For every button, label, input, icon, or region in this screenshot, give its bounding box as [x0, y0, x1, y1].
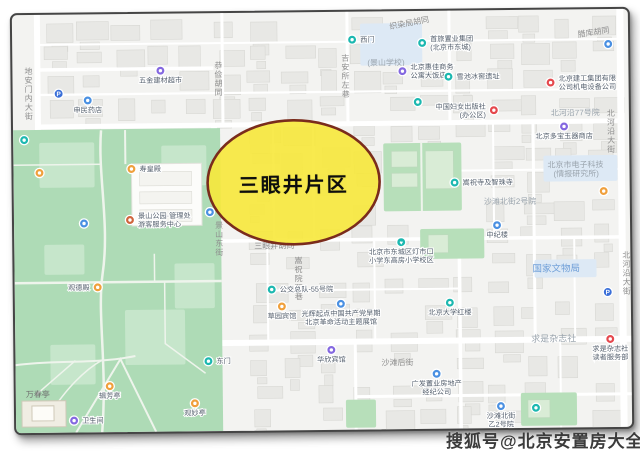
building — [604, 244, 613, 252]
poi-label: 观妙亭 — [184, 408, 206, 417]
region-label: 三眼井片区 — [238, 168, 348, 198]
poi-marker[interactable] — [398, 67, 407, 76]
road-label: 万春亭 — [26, 389, 50, 399]
building — [118, 99, 135, 121]
building — [595, 224, 609, 242]
building — [319, 385, 333, 403]
building — [594, 253, 609, 268]
building — [83, 76, 99, 87]
building — [253, 305, 267, 323]
pavilion — [32, 406, 54, 421]
building — [385, 86, 397, 94]
building — [324, 408, 343, 420]
poi-marker[interactable] — [606, 334, 615, 343]
poi-marker[interactable] — [546, 78, 555, 87]
building — [321, 108, 335, 115]
poi-marker[interactable] — [496, 401, 505, 410]
road — [37, 15, 38, 130]
building — [529, 356, 547, 376]
poi-marker[interactable] — [450, 178, 459, 187]
building — [353, 283, 370, 302]
road-label: (情报研究所) — [553, 168, 599, 178]
building — [77, 52, 101, 63]
heart-icon: ♥ — [399, 241, 403, 247]
building — [493, 146, 524, 160]
building — [257, 429, 267, 433]
building — [394, 399, 412, 407]
road — [459, 239, 461, 429]
temple-building — [392, 173, 418, 187]
poi-marker[interactable] — [432, 369, 441, 378]
building — [111, 25, 140, 40]
building — [521, 308, 535, 319]
poi-label: 草园宾馆 — [268, 311, 297, 320]
poi-marker[interactable] — [559, 122, 568, 131]
poi-label: 公寓大饭店 — [410, 71, 446, 80]
building — [527, 216, 546, 225]
poi-marker[interactable] — [277, 302, 286, 311]
poi-marker[interactable] — [604, 39, 613, 48]
building — [486, 16, 518, 28]
poi-label: 北京多宝玉器商店 — [535, 131, 593, 141]
poi-marker[interactable] — [531, 403, 540, 412]
road-label: 国家文物局 — [532, 262, 580, 274]
building — [255, 410, 271, 427]
road-label: 沙滩后街 — [381, 357, 413, 367]
building — [518, 16, 538, 32]
building — [354, 71, 381, 93]
building — [492, 253, 514, 263]
building — [504, 355, 521, 363]
building — [251, 22, 278, 42]
palace-building — [139, 171, 191, 186]
building — [148, 46, 168, 64]
building — [250, 46, 265, 59]
poi-label: 雪池冰窖遗址 — [456, 72, 499, 81]
poi-marker[interactable] — [413, 97, 422, 106]
building — [249, 98, 266, 110]
poi-marker[interactable] — [156, 66, 165, 75]
road — [620, 9, 624, 427]
building — [152, 100, 166, 113]
poi-label: 东门 — [216, 356, 230, 365]
poi-label: 中纪楼 — [486, 230, 508, 239]
poi-marker[interactable] — [492, 221, 501, 230]
road-label: 恭俭胡同 — [214, 61, 223, 97]
poi-marker[interactable] — [19, 135, 28, 144]
building — [76, 22, 108, 41]
temple-building — [391, 151, 417, 167]
park-path — [13, 164, 101, 165]
road — [37, 68, 213, 70]
poi-marker[interactable] — [204, 357, 213, 366]
building — [257, 61, 266, 68]
building — [50, 100, 73, 118]
poi-marker[interactable] — [417, 38, 426, 47]
building — [489, 282, 509, 293]
road-label: 求是杂志社 — [531, 332, 576, 343]
building — [286, 46, 316, 59]
map-canvas[interactable]: 地安门内大街恭俭胡同吉安所左巷织染局胡同腊库胡同景山东街三眼井胡同嵩祝院西巷沙滩… — [12, 9, 632, 433]
building — [325, 375, 333, 386]
poi-marker[interactable] — [327, 345, 336, 354]
palace-building — [140, 191, 192, 204]
poi-label: (北京市东城) — [430, 42, 471, 51]
building — [117, 50, 145, 68]
building — [388, 432, 405, 433]
building — [179, 46, 201, 68]
poi-label: 北京革命活动主题展馆 — [305, 317, 377, 327]
building — [254, 84, 268, 92]
building — [247, 71, 270, 83]
park-lawn — [44, 244, 84, 274]
building — [553, 42, 577, 59]
building — [354, 126, 375, 136]
building — [386, 411, 415, 431]
poi-marker[interactable] — [336, 299, 345, 308]
map-screenshot[interactable]: 地安门内大街恭俭胡同吉安所左巷织染局胡同腊库胡同景山东街三眼井胡同嵩祝院西巷沙滩… — [10, 7, 634, 435]
building — [494, 162, 513, 169]
road-label: 北河沿77号院 — [551, 107, 600, 118]
building — [595, 304, 613, 321]
poi-marker[interactable]: P — [603, 287, 612, 296]
building — [285, 358, 300, 377]
building — [521, 43, 549, 64]
building — [290, 380, 299, 391]
building — [488, 31, 507, 40]
road-label: (景山学校) — [367, 57, 405, 67]
building — [554, 202, 584, 221]
poi-marker[interactable] — [445, 298, 454, 307]
building — [490, 44, 514, 59]
poi-marker[interactable] — [83, 96, 92, 105]
poi-label: 小学东高房小学校区 — [369, 255, 434, 265]
building — [560, 98, 590, 107]
building — [213, 99, 240, 118]
poi-marker[interactable] — [599, 186, 608, 195]
building — [281, 72, 308, 83]
building — [44, 47, 67, 60]
poi-label: 卫生间 — [82, 416, 104, 425]
road — [574, 237, 575, 339]
poi-label: 北京大学红楼 — [428, 307, 471, 316]
poi-label: 游客服务中心 — [138, 219, 181, 228]
poi-label: 华欣宾馆 — [317, 355, 346, 364]
sohu-watermark: 搜狐号@北京安置房大全 — [446, 427, 640, 452]
zone-path — [421, 143, 422, 211]
poi-marker[interactable] — [267, 285, 276, 294]
building — [321, 71, 336, 93]
road-label: 北河沿大街 — [622, 251, 631, 296]
road-label: 沙滩北街2号院 — [484, 196, 537, 207]
parking-icon: P — [606, 289, 611, 296]
building — [561, 60, 575, 71]
building — [419, 278, 449, 288]
road-label: 北河沿大街 — [606, 109, 615, 154]
building — [186, 99, 205, 114]
poi-label: (办公区) — [459, 110, 485, 119]
poi-label: 嵩祝寺及智珠寺 — [463, 177, 513, 187]
watermark-text: 搜狐号@北京安置房大全 — [446, 432, 640, 451]
road-label: 北京市电子科技 — [547, 159, 603, 170]
poi-marker[interactable] — [105, 382, 114, 391]
road-label: 地安门内大街 — [24, 66, 34, 121]
road-label: 嵩祝院西巷 — [294, 256, 303, 301]
building — [454, 277, 472, 292]
poi-marker[interactable] — [125, 215, 134, 224]
building — [80, 42, 99, 50]
building — [596, 384, 614, 402]
building — [555, 302, 569, 315]
poi-marker[interactable] — [127, 164, 136, 173]
building — [258, 386, 283, 398]
building — [391, 126, 412, 142]
building — [47, 24, 73, 43]
parking-icon: P — [56, 91, 61, 98]
building — [521, 96, 536, 115]
poi-marker[interactable] — [79, 219, 88, 228]
road-label: 吉安所左巷 — [341, 54, 350, 99]
building — [180, 71, 209, 90]
building — [288, 100, 312, 122]
building — [385, 279, 403, 293]
poi-label: 观德殿 — [68, 283, 90, 292]
building — [494, 307, 514, 326]
park-lawn — [50, 344, 95, 384]
building — [418, 127, 439, 140]
poi-label: 西门 — [360, 35, 374, 44]
poi-marker[interactable] — [190, 399, 199, 408]
poi-marker[interactable] — [35, 168, 44, 177]
poi-marker[interactable] — [444, 72, 453, 81]
poi-marker[interactable] — [205, 208, 214, 217]
building — [151, 20, 183, 40]
building — [257, 378, 267, 384]
poi-label: 申民药店 — [73, 105, 102, 114]
poi-label: 经纪公司 — [422, 387, 451, 396]
building — [319, 48, 337, 67]
building — [391, 97, 416, 111]
poi-label: 读者服务部 — [592, 352, 628, 361]
building — [251, 360, 267, 375]
poi-label: 公司机电设备公司 — [559, 82, 617, 92]
poi-marker[interactable]: P — [54, 89, 63, 98]
building — [555, 19, 569, 38]
poi-marker[interactable] — [347, 35, 356, 44]
land-zone — [346, 399, 376, 427]
road-label: 景山东街 — [214, 221, 223, 257]
building — [427, 321, 443, 333]
building — [523, 34, 535, 42]
poi-marker[interactable] — [69, 416, 78, 425]
poi-label: 公交总队-55号院 — [280, 284, 334, 294]
building — [298, 355, 313, 366]
poi-label: 辑芳亭 — [99, 391, 121, 400]
poi-label: 寿皇殿 — [139, 164, 161, 173]
poi-marker[interactable] — [489, 106, 498, 115]
poi-label: 五金建材超市 — [139, 75, 182, 84]
building — [421, 409, 446, 423]
park-lawn — [174, 263, 214, 308]
building — [593, 200, 615, 211]
poi-marker[interactable]: ♥ — [397, 238, 406, 247]
poi-marker[interactable] — [93, 283, 102, 292]
building — [522, 135, 531, 142]
building — [252, 112, 262, 120]
